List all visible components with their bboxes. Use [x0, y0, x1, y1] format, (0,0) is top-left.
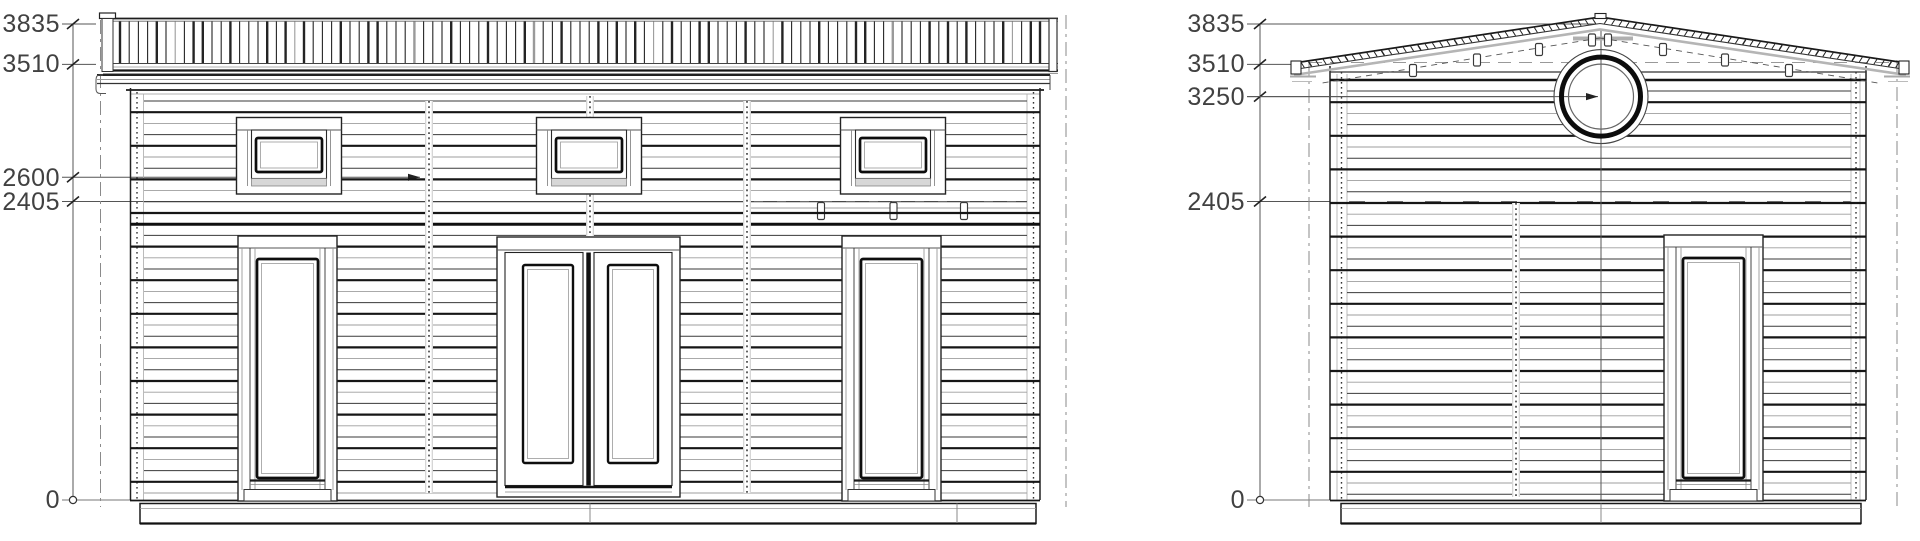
roof-board-tick: [1626, 22, 1629, 27]
front-base-plinth: [140, 504, 1036, 524]
window-glass: [860, 138, 926, 172]
roof-board-tick: [1505, 32, 1508, 37]
roof-board-tick: [1483, 35, 1486, 40]
roof-board-tick: [1728, 38, 1731, 43]
fastener-clip: [1786, 65, 1793, 77]
roof-board-tick: [1655, 27, 1658, 32]
roof-board-tick: [1381, 51, 1384, 56]
roof-board-tick: [1520, 30, 1523, 35]
railing-post: [102, 19, 113, 72]
glazed-door-right: [842, 236, 941, 501]
roof-board-tick: [1323, 59, 1326, 64]
roof-board-tick: [1852, 56, 1855, 61]
window-sill: [856, 179, 931, 187]
double-door: [497, 237, 680, 497]
railing-end-post: [1049, 19, 1057, 72]
roof-board-tick: [1447, 41, 1450, 46]
roof-board-tick: [1786, 46, 1789, 51]
roof-board-tick: [1338, 57, 1341, 62]
fastener-clip: [961, 203, 968, 220]
side-door: [1664, 235, 1763, 501]
roof-board-tick: [1743, 40, 1746, 45]
roof-board-tick: [1425, 44, 1428, 49]
door-threshold: [848, 490, 935, 502]
blueprint-canvas: 3835 3510 2600 2405 0 3835 3510 3250 240…: [0, 0, 1920, 541]
roof-board-tick: [1403, 47, 1406, 52]
roof-board-tick: [1641, 24, 1644, 29]
roof-board-tick: [1491, 34, 1494, 39]
fastener-clip: [890, 203, 897, 220]
roof-board-tick: [1469, 38, 1472, 43]
roof-board-tick: [1714, 35, 1717, 40]
fastener-clip: [1474, 54, 1481, 66]
front-dim-label-3835: 3835: [2, 10, 60, 38]
roof-board-tick: [1513, 31, 1516, 36]
roof-board-tick: [1345, 56, 1348, 61]
roof-board-tick: [1612, 20, 1615, 25]
fastener-clip: [1722, 54, 1729, 66]
roof-board-tick: [1462, 39, 1465, 44]
fastener-clip: [818, 203, 825, 220]
fastener-clip: [1589, 34, 1596, 46]
door-glass: [861, 259, 922, 478]
door-panel: [523, 265, 573, 463]
roof-board-tick: [1779, 45, 1782, 50]
roof-board-tick: [1389, 50, 1392, 55]
door-threshold: [244, 490, 331, 502]
roof-board-tick: [1556, 24, 1559, 29]
roof-board-tick: [1633, 23, 1636, 28]
roof-board-tick: [1721, 36, 1724, 41]
side-dim-label-2405: 2405: [1187, 188, 1245, 216]
roof-board-tick: [1750, 41, 1753, 46]
front-dim-label-2405: 2405: [2, 188, 60, 216]
front-dim-label-3510: 3510: [2, 50, 60, 78]
tall-window-left: [238, 236, 337, 501]
roof-board-tick: [1454, 40, 1457, 45]
door-panel: [608, 265, 658, 463]
roof-board-tick: [1699, 33, 1702, 38]
side-entrance-door: [1664, 235, 1763, 501]
roof-board-tick: [1706, 34, 1709, 39]
side-elevation: 3835 3510 3250 2405 0: [1187, 10, 1910, 524]
roof-board-tick: [1396, 48, 1399, 53]
roof-board-tick: [1604, 19, 1607, 24]
side-dim-label-0: 0: [1231, 486, 1245, 514]
railing-post-cap: [100, 13, 116, 19]
roof-board-tick: [1757, 42, 1760, 47]
roof-board-tick: [1677, 30, 1680, 35]
ridge-cap: [1595, 14, 1606, 19]
window-glass: [256, 138, 322, 172]
roof-board-tick: [1874, 59, 1877, 64]
door-glass: [1683, 258, 1744, 478]
roof-board-tick: [1684, 31, 1687, 36]
front-windows: [237, 118, 946, 195]
roof-board-tick: [1440, 42, 1443, 47]
door-threshold: [1670, 490, 1757, 502]
roof-board-tick: [1823, 52, 1826, 57]
roof-board-tick: [1765, 43, 1768, 48]
roof-board-tick: [1794, 47, 1797, 52]
side-dim-label-3250: 3250: [1187, 83, 1245, 111]
front-elevation: 3835 3510 2600 2405 0: [2, 10, 1066, 524]
fastener-clip: [1410, 65, 1417, 77]
fastener-clip: [1536, 44, 1543, 56]
roof-board-tick: [1360, 54, 1363, 59]
window: [237, 118, 342, 195]
eave-tip: [1291, 61, 1301, 74]
roof-board-tick: [1542, 27, 1545, 32]
roof-board-tick: [1418, 45, 1421, 50]
front-dim-label-0: 0: [46, 486, 60, 514]
roof-board-tick: [1692, 32, 1695, 37]
round-gable-window: [1247, 50, 1648, 144]
roof-board-tick: [1648, 25, 1651, 30]
side-dim-label-3510: 3510: [1187, 50, 1245, 78]
roof-board-tick: [1476, 36, 1479, 41]
roof-board-tick: [1352, 55, 1355, 60]
front-doors: [238, 236, 941, 501]
window: [841, 118, 946, 195]
door-glass: [257, 259, 318, 478]
roof-board-tick: [1527, 29, 1530, 34]
roof-board-tick: [1619, 21, 1622, 26]
roof-board-tick: [1816, 51, 1819, 56]
roof-board-tick: [1859, 57, 1862, 62]
window-sill: [552, 179, 627, 187]
roof-board-tick: [1663, 28, 1666, 33]
window: [537, 118, 642, 195]
side-base-plinth: [1341, 504, 1861, 524]
roof-board-tick: [1670, 29, 1673, 34]
roof-board-tick: [1801, 48, 1804, 53]
roof-board-tick: [1837, 54, 1840, 59]
window-glass: [556, 138, 622, 172]
roof-board-tick: [1808, 50, 1811, 55]
roof-board-tick: [1772, 44, 1775, 49]
roof-board-tick: [1593, 19, 1596, 24]
fastener-clip: [1660, 44, 1667, 56]
roof-board-tick: [1411, 46, 1414, 51]
balcony-railing: [100, 13, 1059, 74]
roof-board-tick: [1374, 52, 1377, 57]
roof-board-tick: [1735, 39, 1738, 44]
zero-level-marker: [1256, 496, 1263, 503]
window-sill: [252, 179, 327, 187]
base-plinth: [140, 504, 1036, 524]
roof-board-tick: [1867, 58, 1870, 63]
roof-board-tick: [1432, 43, 1435, 48]
side-dim-label-3835: 3835: [1187, 10, 1245, 38]
roof-board-tick: [1571, 22, 1574, 27]
roof-board-tick: [1845, 55, 1848, 60]
roof-board-tick: [1830, 53, 1833, 58]
eave-tip: [1899, 61, 1909, 74]
roof-board-tick: [1549, 25, 1552, 30]
elevation-drawings: 3835 3510 2600 2405 0 3835 3510 3250 240…: [0, 0, 1920, 541]
roof-board-tick: [1578, 21, 1581, 26]
roof-board-tick: [1498, 33, 1501, 38]
door-mullion: [586, 253, 591, 486]
fastener-clip: [1605, 34, 1612, 46]
roof-board-tick: [1301, 63, 1304, 68]
zero-level-marker: [69, 496, 76, 503]
roof-board-tick: [1534, 28, 1537, 33]
roof-board-tick: [1367, 53, 1370, 58]
